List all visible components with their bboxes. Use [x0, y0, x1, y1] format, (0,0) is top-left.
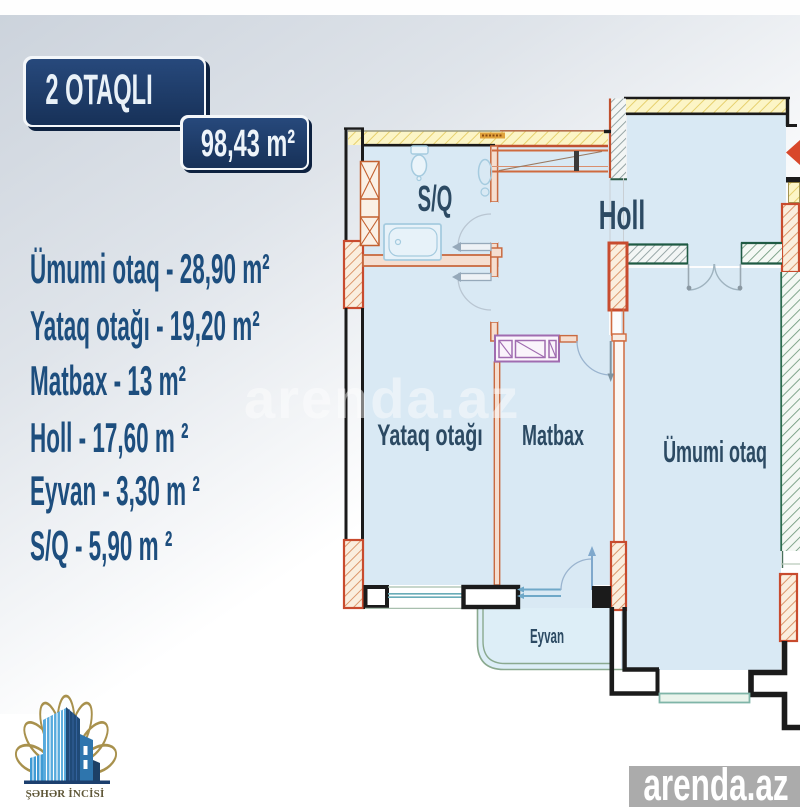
svg-text:arenda.az: arenda.az	[643, 761, 788, 807]
svg-text:S/Q: S/Q	[418, 180, 453, 219]
svg-text:ŞƏHƏR İNCİSİ: ŞƏHƏR İNCİSİ	[26, 788, 105, 800]
svg-text:Eyvan: Eyvan	[530, 626, 564, 648]
svg-text:arenda.az: arenda.az	[244, 367, 520, 430]
svg-text:Ümumi otaq: Ümumi otaq	[663, 434, 767, 469]
svg-text:Matbax - 13 m²: Matbax - 13 m²	[30, 359, 186, 405]
svg-text:98,43 m²: 98,43 m²	[201, 121, 295, 164]
svg-text:Holl - 17,60 m ²: Holl - 17,60 m ²	[30, 416, 189, 462]
svg-text:Matbax: Matbax	[522, 420, 584, 452]
svg-text:S/Q - 5,90 m ²: S/Q - 5,90 m ²	[30, 524, 172, 570]
svg-text:Yataq otağı - 19,20 m²: Yataq otağı - 19,20 m²	[30, 304, 260, 350]
svg-text:2 OTAQLI: 2 OTAQLI	[45, 67, 152, 114]
svg-text:Holl: Holl	[599, 193, 645, 239]
svg-text:Eyvan - 3,30 m ²: Eyvan - 3,30 m ²	[30, 469, 200, 515]
svg-text:Ümumi otaq - 28,90 m²: Ümumi otaq - 28,90 m²	[30, 247, 270, 293]
